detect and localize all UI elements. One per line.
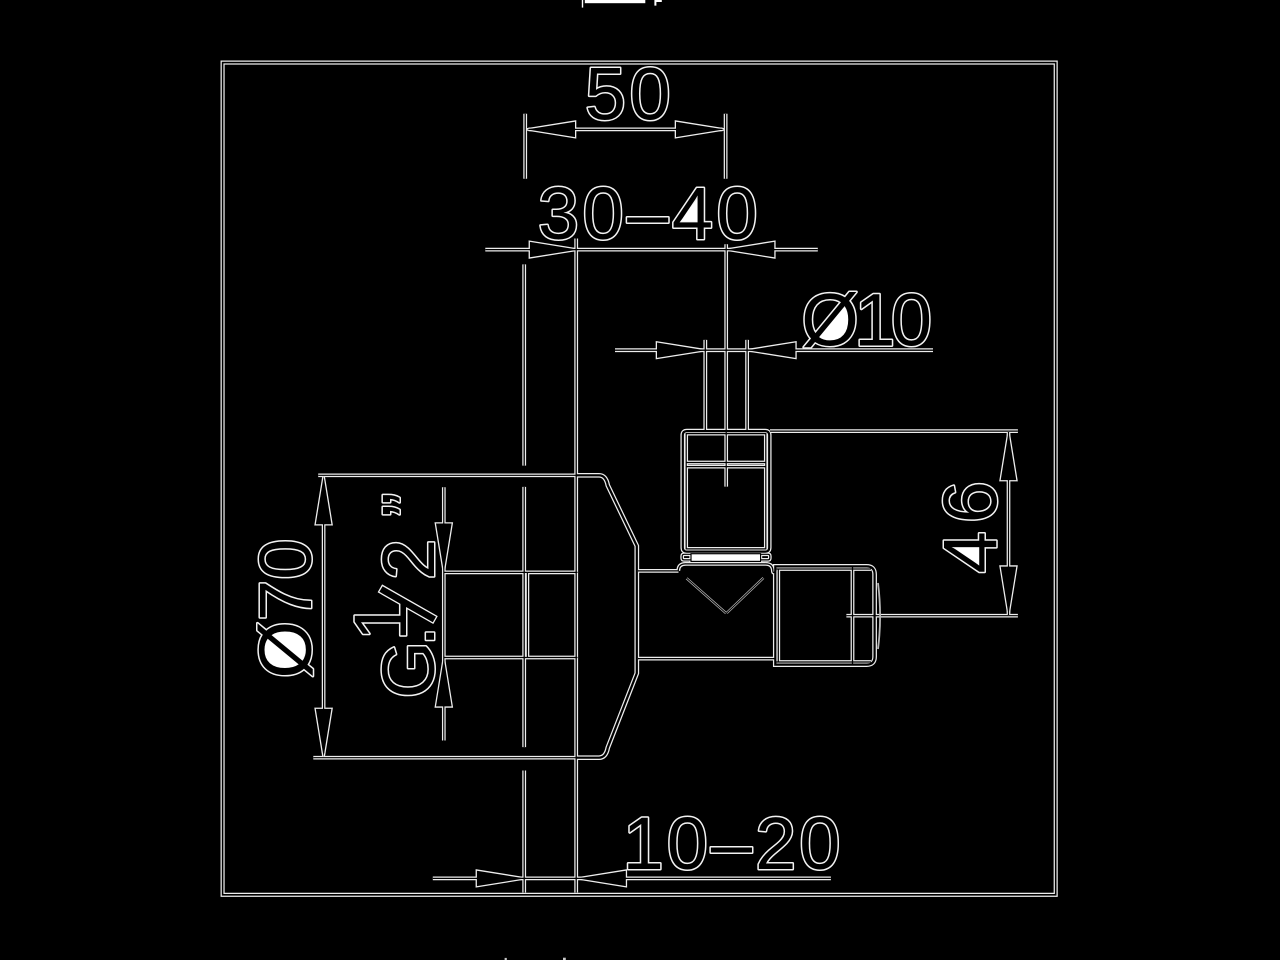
svg-text:30–40: 30–40 [538, 172, 761, 255]
svg-text:2: 2 [367, 539, 450, 580]
svg-text:50: 50 [585, 53, 674, 136]
svg-text:10–20: 10–20 [623, 802, 844, 885]
svg-text:”: ” [367, 492, 450, 517]
svg-text:46: 46 [929, 473, 1014, 574]
svg-text:Ø70: Ø70 [244, 539, 327, 679]
svg-text:G: G [367, 641, 450, 699]
svg-text:Ø10: Ø10 [801, 279, 930, 362]
